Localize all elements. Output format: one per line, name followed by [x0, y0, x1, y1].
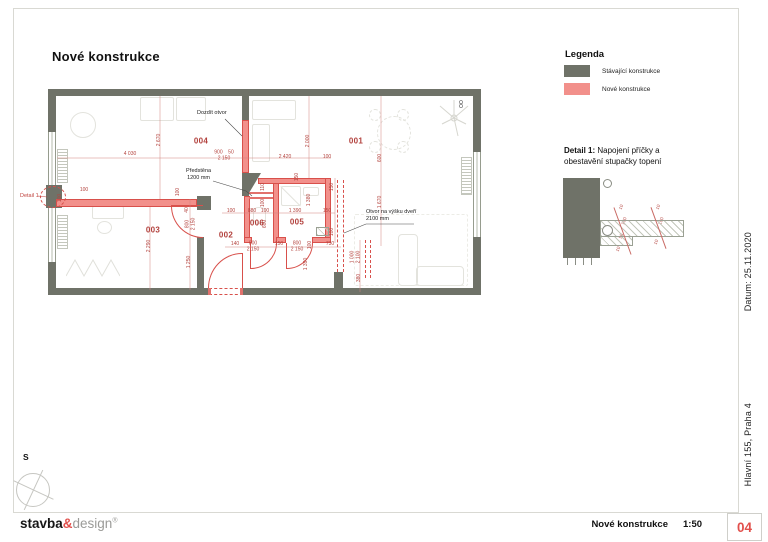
opening-jamb-dash-1: [365, 240, 366, 278]
wall-left-lower: [48, 262, 56, 288]
dimension-label: 150: [330, 183, 336, 191]
furniture-kitchen-001b: [252, 124, 270, 162]
opening-jamb-dash-2: [370, 240, 371, 278]
wall-stub-001: [334, 272, 343, 288]
legend: Stávající konstrukceNové konstrukce: [564, 65, 660, 101]
opening-dash-2: [343, 180, 344, 272]
window-left-1: [48, 132, 56, 185]
wall-right-lower: [473, 237, 481, 288]
new-wall-dozdit-otvor: [242, 120, 249, 173]
detail-pipe-in-wall: [602, 225, 613, 236]
threshold-cap-right: [240, 288, 243, 295]
furniture-kitchen-001: [252, 100, 296, 120]
dimension-label: 100: [261, 199, 267, 207]
legend-swatch: [564, 83, 590, 95]
wall-top: [48, 89, 481, 96]
room-label-005: 005: [290, 218, 304, 227]
furniture-cabinet-004: [140, 97, 174, 121]
detail-tick: [591, 258, 592, 265]
annotation: Detail 1: [20, 193, 39, 200]
detail-existing-wall: [563, 178, 600, 258]
dimension-label: 380: [357, 274, 363, 282]
room-label-002: 002: [219, 231, 233, 240]
dimension-label: 1 000 2 100: [350, 251, 362, 264]
detail-heading-bold: Detail 1:: [564, 146, 595, 155]
window-left-2: [48, 208, 56, 262]
new-wall-006-005: [273, 182, 279, 243]
logo-design: design: [73, 516, 113, 531]
room-label-004: 004: [194, 137, 208, 146]
room-label-001: 001: [349, 137, 363, 146]
furniture-chair: [369, 141, 381, 153]
dimension-label: 800 2 150: [291, 241, 304, 253]
dimension-label: 4 030: [124, 152, 137, 158]
legend-heading: Legenda: [565, 49, 604, 60]
dimension-label: 1 390: [304, 258, 310, 271]
annotation: Otvor na výšku dveří 2100 mm: [366, 209, 416, 223]
furniture-chair-003: [97, 221, 112, 234]
entry-door-threshold: [209, 288, 243, 295]
dimension-label: 800 2 150: [185, 218, 197, 231]
dimension-label: 40: [185, 207, 191, 213]
company-logo: stavba&design®: [20, 516, 118, 531]
dimension-label: 2 670: [157, 134, 163, 147]
room-label-003: 003: [146, 226, 160, 235]
dimension-label: 140: [231, 242, 239, 248]
dimension-label: 150: [295, 173, 301, 181]
furniture-chair: [397, 141, 409, 153]
furniture-chair: [397, 109, 409, 121]
sidebar-address: Hlavní 155, Praha 4: [743, 403, 753, 486]
dimension-label: 100: [323, 155, 331, 161]
dimension-label: 600: [263, 220, 269, 228]
detail-tick: [575, 258, 576, 265]
detail-heading: Detail 1: Napojení příčky a obestavění s…: [564, 146, 684, 168]
dimension-label: 900 50 2 150: [214, 150, 233, 162]
dimension-label: 600: [378, 154, 384, 162]
furniture-table-004: [70, 112, 96, 138]
furniture-wardrobe-zigzag: [66, 258, 120, 278]
dimension-label: 800 2 150: [247, 241, 260, 253]
dimension-label: 1 380: [307, 194, 313, 207]
dimension-label: 100: [58, 194, 64, 202]
detail-tick: [583, 258, 584, 265]
dimension-label: 150: [323, 209, 331, 215]
door-leaf-entry: [242, 253, 243, 288]
wall-partition-004-001-top: [242, 96, 249, 120]
legend-swatch: [564, 65, 590, 77]
dimension-label: 2 000: [306, 135, 312, 148]
legend-item: Stávající konstrukce: [564, 65, 660, 77]
sidebar-date: Datum: 25.11.2020: [743, 232, 753, 311]
dimension-label: 10: [655, 204, 662, 210]
legend-item: Nové konstrukce: [564, 83, 660, 95]
dimension-label: 100: [308, 241, 314, 249]
furniture-desk-003: [92, 206, 124, 219]
legend-label: Stávající konstrukce: [602, 68, 660, 75]
wall-002-003: [197, 237, 204, 288]
threshold-cap-left: [208, 288, 211, 295]
annotation: Předstěna 1200 mm: [186, 168, 211, 182]
dimension-label: 100: [261, 209, 269, 215]
dimension-label: 110: [261, 183, 267, 191]
radiator-right: [461, 157, 472, 195]
drawing-title: Nové konstrukce: [548, 519, 668, 530]
logo-ampersand: &: [63, 516, 73, 531]
furniture-sofa: [398, 234, 418, 286]
sheet-number-box: 04: [727, 513, 762, 541]
detail-tick: [567, 258, 568, 265]
drawing-scale: 1:50: [683, 519, 702, 530]
predstena-line-1: [249, 192, 273, 194]
dimension-label: 2 420: [279, 155, 292, 161]
plant-icon: [438, 98, 470, 138]
annotation: Dozdít otvor: [197, 110, 227, 117]
dimension-label: 150: [275, 242, 283, 248]
dimension-label: 100: [330, 228, 336, 236]
dimension-label: 10: [615, 246, 622, 252]
dimension-label: 100: [227, 209, 235, 215]
furniture-chair: [369, 109, 381, 121]
sheet-number: 04: [737, 520, 752, 535]
wall-right-upper: [473, 96, 481, 152]
radiator-left-1: [57, 149, 68, 183]
logo-registered-icon: ®: [112, 518, 117, 525]
window-right: [473, 152, 481, 237]
dimension-label: 100: [176, 188, 182, 196]
dimension-label: 2 290: [147, 240, 153, 253]
dimension-label: 880: [248, 209, 256, 215]
dimension-label: 1 670: [378, 196, 384, 209]
detail-pipe-top: [603, 179, 612, 188]
opening-dash-1: [337, 180, 338, 272]
furniture-sofa-seat: [416, 266, 464, 286]
logo-stavba: stavba: [20, 516, 63, 531]
dimension-label: 730: [326, 242, 334, 248]
furniture-cabinet-004b: [176, 97, 206, 121]
riser-hatch-005: [316, 227, 329, 236]
dimension-label: 100: [80, 188, 88, 194]
dimension-label: 10: [653, 239, 660, 245]
dimension-label: 1 250: [187, 256, 193, 269]
wall-left-upper: [48, 96, 56, 132]
corner-mark: OO: [457, 100, 463, 108]
wall-bottom: [48, 288, 481, 295]
radiator-left-2: [57, 215, 68, 249]
dimension-label: 1 390: [289, 209, 302, 215]
legend-label: Nové konstrukce: [602, 86, 650, 93]
dimension-label: 10: [618, 204, 625, 210]
door-arc-entry: [208, 253, 242, 288]
compass-north-label: S: [23, 452, 29, 462]
wall-chimney-block: [242, 173, 249, 196]
